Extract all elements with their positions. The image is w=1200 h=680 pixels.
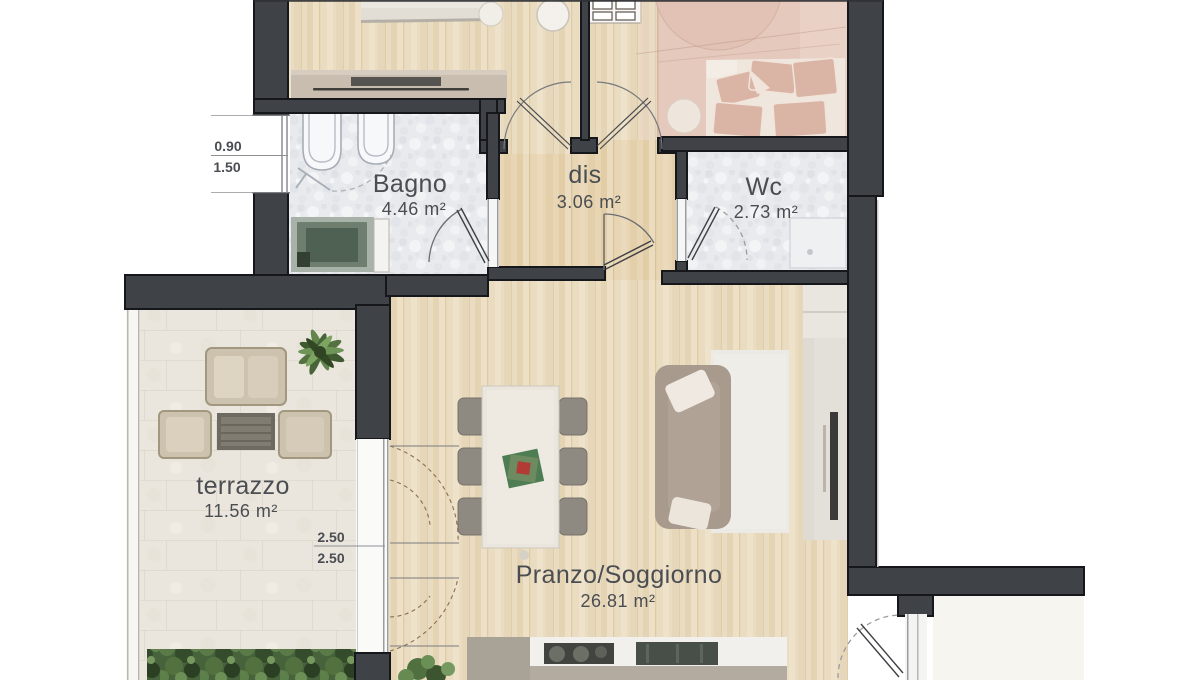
svg-text:1.50: 1.50: [213, 159, 240, 175]
svg-text:3.06 m²: 3.06 m²: [557, 192, 622, 212]
svg-text:Pranzo/Soggiorno: Pranzo/Soggiorno: [516, 561, 723, 589]
svg-text:dis: dis: [568, 161, 601, 189]
svg-text:Bagno: Bagno: [373, 170, 447, 198]
svg-text:2.50: 2.50: [317, 529, 344, 545]
svg-text:26.81 m²: 26.81 m²: [580, 591, 655, 611]
svg-text:Wc: Wc: [746, 173, 783, 201]
svg-text:2.73 m²: 2.73 m²: [734, 202, 799, 222]
svg-text:terrazzo: terrazzo: [196, 472, 290, 500]
svg-text:4.46 m²: 4.46 m²: [382, 199, 447, 219]
svg-text:2.50: 2.50: [317, 550, 344, 566]
svg-text:0.90: 0.90: [214, 138, 241, 154]
svg-text:11.56 m²: 11.56 m²: [204, 501, 278, 521]
